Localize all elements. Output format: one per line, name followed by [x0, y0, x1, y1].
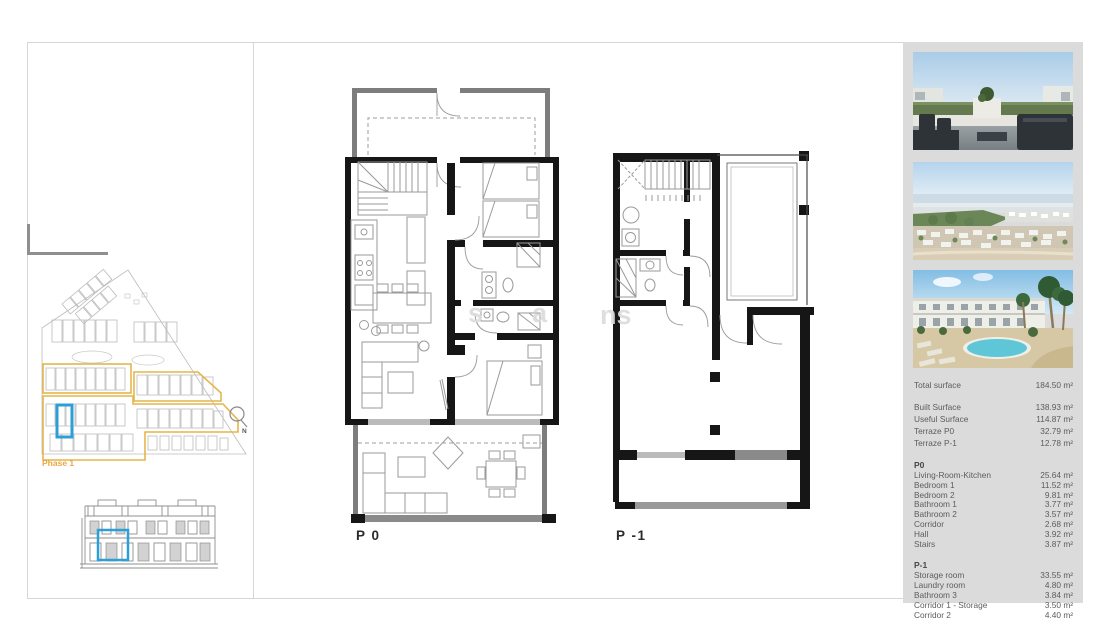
elevation-drawing — [50, 488, 225, 578]
p1-terrace-edge — [635, 502, 787, 509]
p1-bottom-gray-wall — [735, 450, 787, 460]
p0-label: P 0 — [356, 528, 381, 543]
fold-mark-vertical — [27, 224, 30, 255]
p0-bedroom2 — [487, 345, 542, 415]
frame-top-rule — [27, 42, 904, 43]
p0-stairs — [358, 162, 427, 215]
p1-window — [637, 453, 685, 457]
p-1-label: P -1 — [616, 528, 647, 543]
site-row-1 — [52, 320, 177, 342]
surface-row-label: Terraze P-1 — [914, 437, 957, 449]
upper-floor-windows — [90, 521, 209, 534]
ground-floor-windows — [90, 543, 210, 561]
fold-mark-horizontal — [27, 252, 108, 255]
surface-row: Built Surface 138.93 m² — [914, 401, 1073, 413]
floorplan-p-1 — [606, 147, 814, 523]
plan-sheet: N Phase 1 — [0, 0, 1110, 626]
site-plan-drawing: N — [30, 262, 252, 474]
p0-terrace-edge — [365, 515, 542, 522]
surface-row: Terraze P0 32.79 m² — [914, 425, 1073, 437]
surface-tables: Total surface 184.50 m² Built Surface 13… — [903, 379, 1083, 620]
info-sidebar: Total surface 184.50 m² Built Surface 13… — [903, 42, 1083, 603]
total-surface-row: Total surface 184.50 m² — [914, 379, 1073, 391]
summary-rows: Built Surface 138.93 m² Useful Surface 1… — [914, 401, 1073, 449]
photo-pool-townhouses — [913, 270, 1073, 368]
p0-bathroom1 — [482, 243, 540, 298]
watermark-fragment: ns — [600, 300, 632, 331]
unit-highlight-siteplan — [57, 405, 72, 437]
frame-bottom-rule — [27, 598, 904, 599]
surface-row-value: 138.93 m² — [1036, 401, 1073, 413]
floorplan-p0 — [343, 85, 561, 523]
surface-row: Corridor 2 4.40 m² — [914, 611, 1073, 621]
surface-sections: P0 Living-Room-Kitchen 25.64 m² Bedroom … — [914, 460, 1073, 620]
phase1-label: Phase 1 — [42, 458, 74, 468]
surface-row-value: 114.87 m² — [1036, 413, 1073, 425]
surface-row-value: 32.79 m² — [1040, 425, 1073, 437]
surface-row-value: 4.40 m² — [1045, 611, 1073, 621]
surface-row-label: Corridor 2 — [914, 611, 951, 621]
photo-aerial-coast — [913, 162, 1073, 260]
section-rows: Storage room 33.55 m² Laundry room 4.80 … — [914, 571, 1073, 620]
p1-lightwell — [727, 163, 797, 300]
surface-row-value: 3.87 m² — [1045, 540, 1073, 550]
p0-terrace-furniture — [363, 435, 540, 513]
p0-living-room — [362, 341, 448, 410]
watermark-fragment: a — [532, 298, 547, 329]
p0-entrance-terrace-walls — [352, 88, 550, 157]
surface-row-label: Built Surface — [914, 401, 961, 413]
frame-left-rule — [27, 42, 28, 599]
p0-bedroom1 — [483, 163, 539, 237]
site-row-4 — [50, 434, 228, 451]
p0-rear-terrace-walls — [353, 425, 547, 514]
photo-rooftop-terrace — [913, 52, 1073, 150]
roof-overhang-dashed — [368, 118, 535, 155]
surface-row-label: Terraze P0 — [914, 425, 954, 437]
compass-north-label: N — [242, 428, 247, 435]
site-block-nw — [62, 269, 122, 326]
surface-row-label: Stairs — [914, 540, 935, 550]
total-surface-value: 184.50 m² — [1036, 379, 1073, 391]
p1-laundry — [622, 207, 639, 246]
surface-row: Terraze P-1 12.78 m² — [914, 437, 1073, 449]
surface-row: Stairs 3.87 m² — [914, 540, 1073, 550]
surface-row-label: Useful Surface — [914, 413, 968, 425]
total-surface-label: Total surface — [914, 379, 961, 391]
surface-row: Useful Surface 114.87 m² — [914, 413, 1073, 425]
roof-parapets — [88, 500, 208, 516]
section-rows: Living-Room-Kitchen 25.64 m² Bedroom 1 1… — [914, 471, 1073, 549]
frame-divider-rule — [253, 42, 254, 599]
p1-stairs — [618, 160, 710, 201]
watermark-fragment: s — [468, 298, 483, 329]
p0-kitchen — [351, 217, 425, 310]
surface-row-value: 12.78 m² — [1040, 437, 1073, 449]
p1-bathroom3 — [616, 259, 660, 297]
